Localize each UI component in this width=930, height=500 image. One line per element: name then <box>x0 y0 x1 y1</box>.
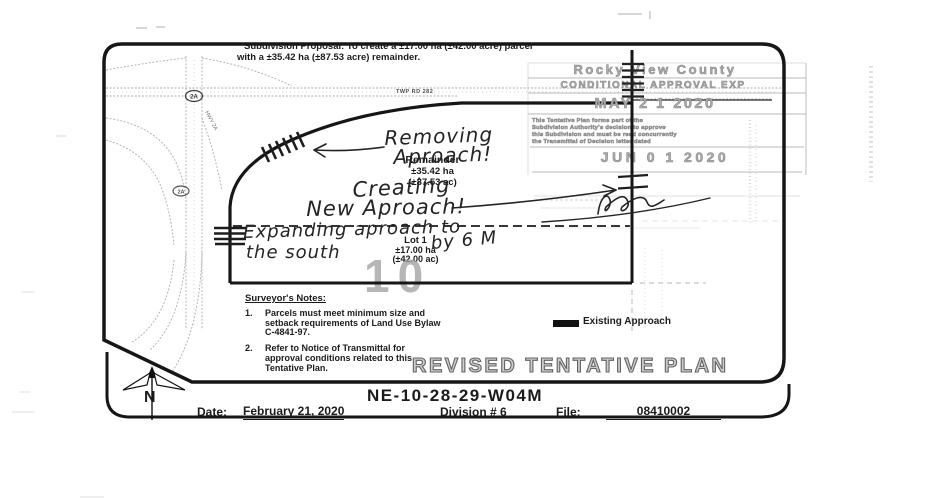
removing-arrow <box>314 147 384 151</box>
scanned-plan-sheet: 2A 2A TWP RD 282 HWY 2A Subdivision Prop… <box>0 0 930 500</box>
overlay-linework <box>0 0 930 500</box>
handwritten-arrows <box>314 144 710 222</box>
east-boundary-line <box>230 50 632 283</box>
handwritten-flourish <box>542 198 710 222</box>
creating-arrow <box>452 190 616 208</box>
